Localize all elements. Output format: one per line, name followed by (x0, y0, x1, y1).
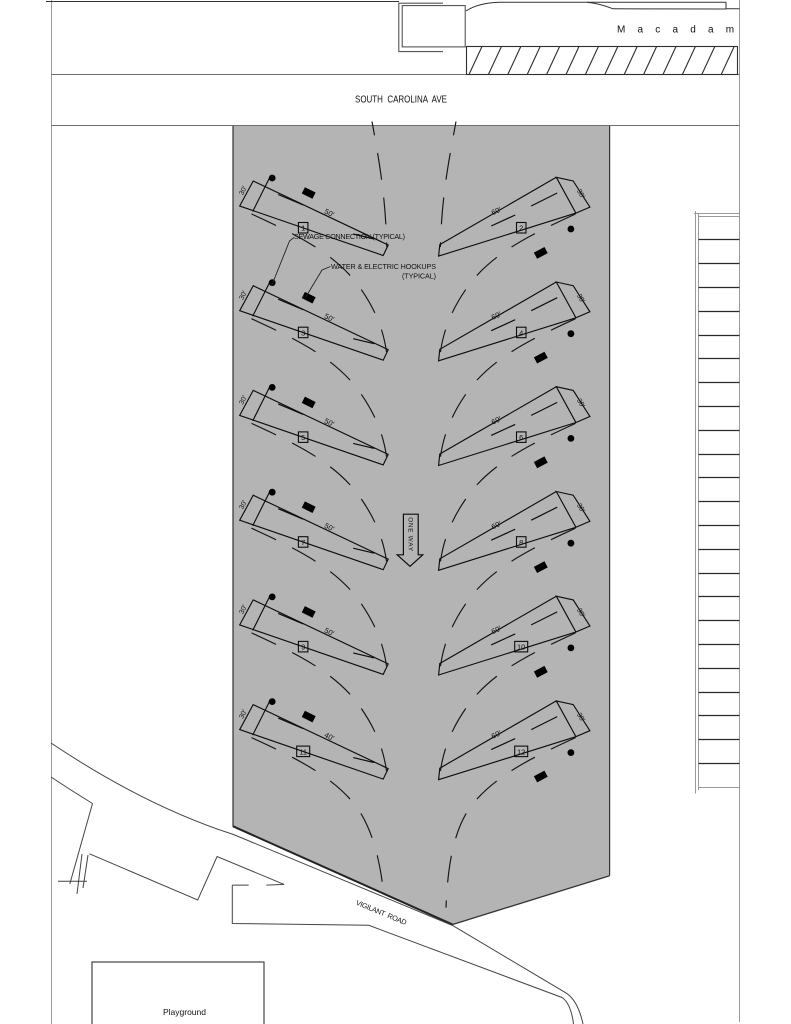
svg-text:3: 3 (301, 328, 305, 337)
svg-text:10: 10 (517, 643, 525, 652)
svg-text:2: 2 (519, 224, 523, 233)
svg-text:ONE WAY: ONE WAY (407, 517, 414, 552)
svg-text:Playground: Playground (163, 1007, 206, 1017)
svg-text:7: 7 (301, 538, 305, 547)
svg-text:VIGILANT ROAD: VIGILANT ROAD (355, 898, 408, 927)
svg-text:8: 8 (519, 538, 523, 547)
svg-text:WATER & ELECTRIC HOOKUPS: WATER & ELECTRIC HOOKUPS (331, 262, 436, 271)
svg-text:SOUTH CAROLINA AVE: SOUTH CAROLINA AVE (355, 95, 447, 106)
svg-text:4: 4 (519, 328, 523, 337)
svg-text:11: 11 (299, 747, 307, 756)
svg-text:Macadam: Macadam (617, 25, 746, 36)
svg-text:5: 5 (301, 433, 305, 442)
svg-text:12: 12 (517, 747, 525, 756)
svg-text:SEWAGE CONNECTION (TYPICAL): SEWAGE CONNECTION (TYPICAL) (294, 232, 405, 241)
svg-text:(TYPICAL): (TYPICAL) (402, 272, 436, 281)
svg-text:9: 9 (301, 643, 305, 652)
svg-text:6: 6 (519, 433, 523, 442)
